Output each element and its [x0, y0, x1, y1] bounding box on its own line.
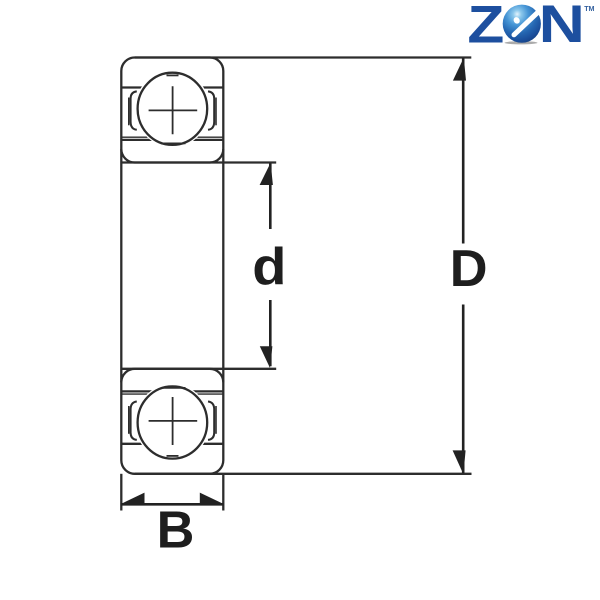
- svg-text:d: d: [252, 238, 286, 296]
- svg-text:Z: Z: [467, 0, 504, 55]
- svg-text:D: D: [450, 240, 488, 298]
- svg-text:B: B: [157, 501, 195, 559]
- svg-text:N: N: [539, 0, 585, 54]
- svg-text:TM: TM: [584, 4, 594, 13]
